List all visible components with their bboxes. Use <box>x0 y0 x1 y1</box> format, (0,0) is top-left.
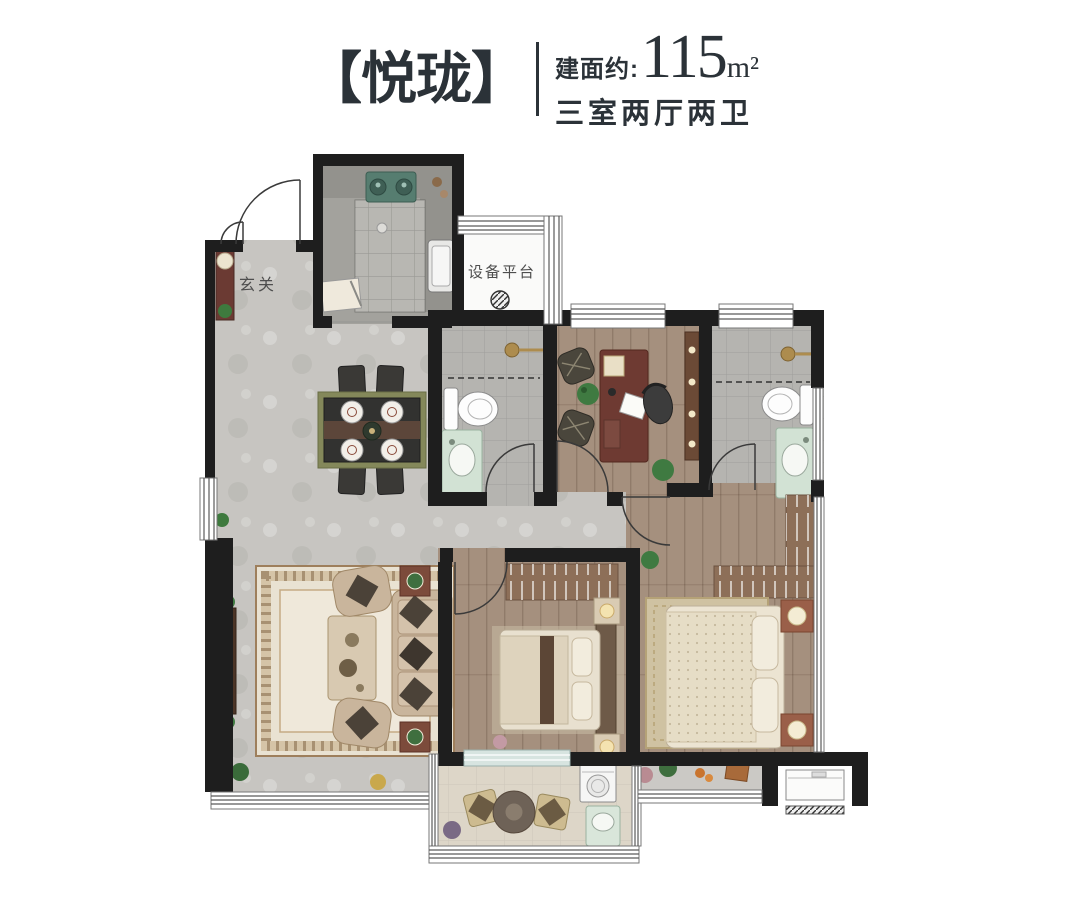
plate <box>381 439 403 461</box>
vent-grill <box>786 806 844 814</box>
kitchen-deco <box>377 223 387 233</box>
ac-platform <box>786 770 844 814</box>
balcony-chair <box>533 793 570 830</box>
toilet-tank <box>444 388 458 430</box>
wardrobe-hangers <box>714 566 822 598</box>
pillow <box>752 678 778 732</box>
entry-label: 玄关 <box>239 276 277 294</box>
shelf-light <box>689 411 696 418</box>
window-band-left <box>211 792 433 809</box>
floor-plan: 玄关 设备平台 <box>0 0 1080 921</box>
master-window-right <box>814 497 824 752</box>
entry-plant <box>218 304 232 318</box>
side-table-plant <box>407 573 423 589</box>
ac-handle <box>812 772 826 777</box>
lamp <box>600 740 614 754</box>
pillow <box>572 682 592 720</box>
toilet-tank <box>800 385 813 425</box>
platform-window-right <box>544 216 562 324</box>
table-deco <box>356 684 364 692</box>
kitchen-deco <box>440 190 448 198</box>
duvet-texture <box>666 612 756 742</box>
desk-cup <box>608 388 616 396</box>
centerpiece-dot <box>369 428 375 434</box>
burner-glint <box>402 183 407 188</box>
wardrobe-hangers <box>506 564 618 600</box>
plate <box>341 401 363 423</box>
plate <box>341 439 363 461</box>
wm-drum <box>587 775 609 797</box>
table-deco <box>339 659 357 677</box>
blossom-deco <box>493 735 507 749</box>
study-window <box>571 304 665 328</box>
blanket <box>500 636 568 724</box>
armchair <box>331 696 393 749</box>
lamp <box>788 721 806 739</box>
window-band-right <box>638 790 762 803</box>
bed-runner <box>540 636 554 724</box>
pillow <box>752 616 778 670</box>
armchair <box>330 563 393 618</box>
faucet <box>449 439 455 445</box>
master-plant <box>641 551 659 569</box>
equipment-platform-label: 设备平台 <box>468 264 536 281</box>
gold-deco <box>370 774 386 790</box>
shelf-light <box>689 379 696 386</box>
faucet <box>803 437 809 443</box>
fruit <box>695 768 705 778</box>
lamp <box>600 604 614 618</box>
platform-window-top <box>458 216 550 234</box>
kitchen-deco <box>432 177 442 187</box>
shower-head <box>505 343 519 357</box>
table-deco <box>345 633 359 647</box>
bathroom2-window-top <box>719 304 793 328</box>
lamp <box>788 607 806 625</box>
bedroom2-window <box>464 750 570 766</box>
balcony-plant <box>443 821 461 839</box>
cutting-board <box>321 278 362 312</box>
study-plant <box>577 383 599 405</box>
kitchen-tile-island <box>355 200 425 312</box>
sink-basin <box>432 246 450 286</box>
study-plant <box>652 459 674 481</box>
shelf-light <box>689 441 696 448</box>
side-table-plant <box>407 729 423 745</box>
study-plant-dot <box>581 387 587 393</box>
shelf-light <box>689 347 696 354</box>
coffee-table <box>328 616 376 700</box>
laundry-basin <box>592 813 614 831</box>
burner-glint <box>376 183 381 188</box>
drain-symbol <box>491 291 509 309</box>
shower-head <box>781 347 795 361</box>
desk-lamp <box>604 356 624 376</box>
bedroom-2 <box>492 564 624 760</box>
basin <box>449 444 475 476</box>
balcony-table <box>505 803 523 821</box>
bathroom2-window-right <box>813 388 823 480</box>
pillow <box>572 638 592 676</box>
entry-door <box>221 180 300 244</box>
entry-lamp <box>217 253 233 269</box>
desk-drawer <box>604 420 620 448</box>
fruit <box>705 774 713 782</box>
basin <box>782 444 808 476</box>
plate <box>381 401 403 423</box>
floor-plant <box>231 763 249 781</box>
bay-window-left <box>200 478 217 540</box>
